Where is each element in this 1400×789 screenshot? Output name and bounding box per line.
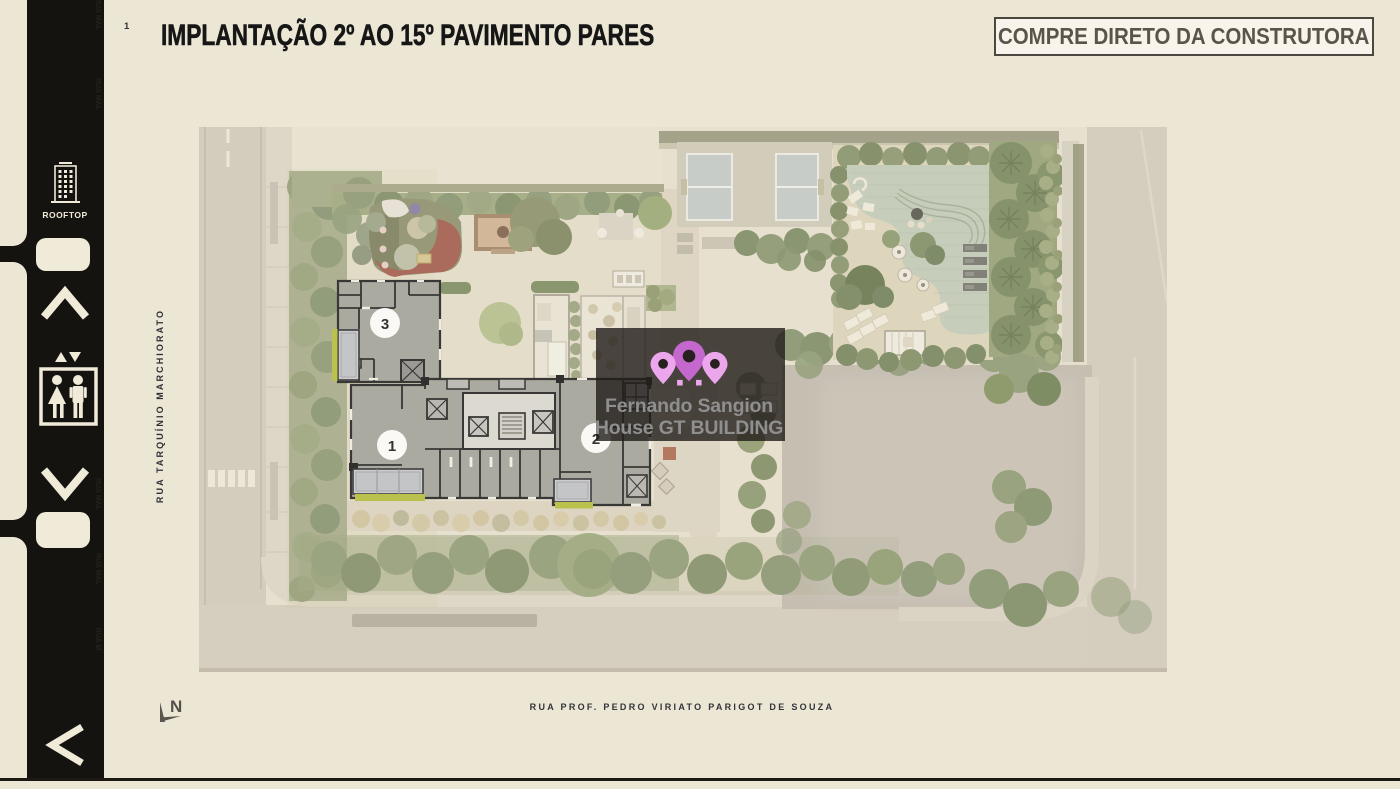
svg-text:N: N xyxy=(170,697,182,716)
svg-text:ROOFTOP: ROOFTOP xyxy=(42,210,87,220)
svg-text:House GT BUILDING: House GT BUILDING xyxy=(596,417,783,439)
svg-text:Fernando Sangion: Fernando Sangion xyxy=(605,395,773,417)
